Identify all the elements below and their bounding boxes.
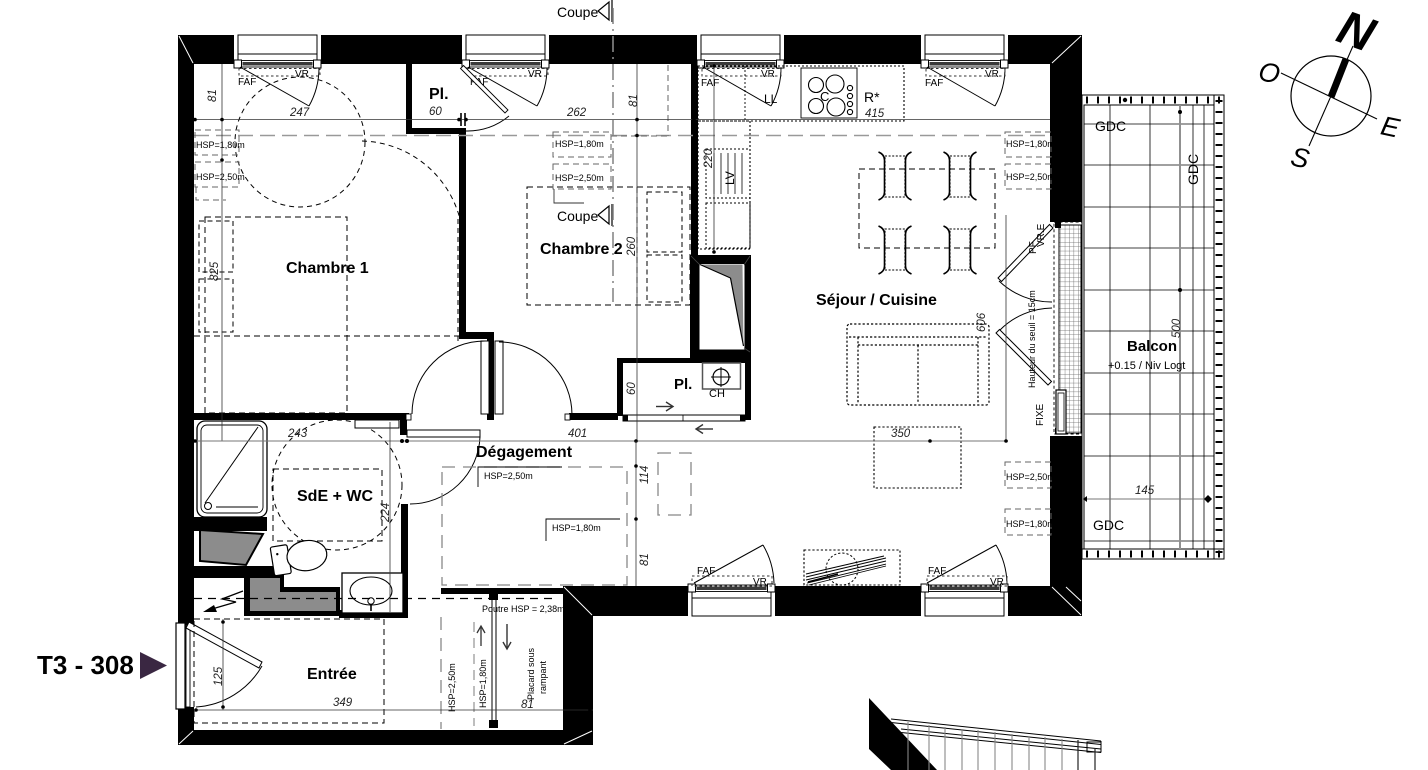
svg-text:Poutre HSP = 2,38m: Poutre HSP = 2,38m <box>482 604 565 614</box>
svg-text:HSP=2,50m: HSP=2,50m <box>555 173 604 183</box>
svg-text:HSP=2,50m: HSP=2,50m <box>1006 472 1055 482</box>
svg-text:HSP=2,50m: HSP=2,50m <box>196 172 245 182</box>
svg-text:FAF: FAF <box>238 77 256 88</box>
svg-text:CH: CH <box>709 388 725 400</box>
svg-text:Séjour / Cuisine: Séjour / Cuisine <box>816 292 937 309</box>
svg-text:HSP=2,50m: HSP=2,50m <box>1006 172 1055 182</box>
svg-text:HSP=1,80m: HSP=1,80m <box>478 659 488 708</box>
svg-text:C: C <box>820 89 829 104</box>
svg-text:FAF: FAF <box>928 566 946 577</box>
svg-text:VR: VR <box>761 69 775 80</box>
svg-text:LL: LL <box>764 92 778 106</box>
svg-text:401: 401 <box>568 428 587 440</box>
svg-text:O: O <box>1256 56 1283 90</box>
svg-text:Chambre 2: Chambre 2 <box>540 241 623 258</box>
svg-text:145: 145 <box>1135 485 1155 497</box>
svg-text:VR: VR <box>295 69 309 80</box>
svg-text:N: N <box>1330 1 1382 63</box>
svg-text:HSP=1,80m: HSP=1,80m <box>1006 519 1055 529</box>
svg-text:Balcon: Balcon <box>1127 338 1177 355</box>
svg-text:Entrée: Entrée <box>307 666 357 683</box>
svg-text:260: 260 <box>626 236 638 257</box>
svg-text:81: 81 <box>207 89 219 102</box>
svg-text:R*: R* <box>864 89 880 105</box>
svg-text:224: 224 <box>380 503 392 523</box>
svg-text:60: 60 <box>626 382 638 395</box>
svg-text:60: 60 <box>429 106 442 118</box>
svg-text:81: 81 <box>628 94 640 107</box>
svg-text:Coupe: Coupe <box>557 208 598 224</box>
svg-text:SdE + WC: SdE + WC <box>297 488 373 505</box>
svg-text:T3 - 308: T3 - 308 <box>37 650 134 680</box>
svg-text:VR: VR <box>985 69 999 80</box>
svg-text:HSP=2,50m: HSP=2,50m <box>447 663 457 712</box>
svg-text:Placard sous: Placard sous <box>526 647 536 700</box>
svg-text:S: S <box>1288 141 1312 174</box>
svg-text:GDC: GDC <box>1095 118 1126 134</box>
svg-text:VR: VR <box>990 577 1004 588</box>
svg-text:Pl.: Pl. <box>674 376 692 393</box>
svg-text:Coupe: Coupe <box>557 4 598 20</box>
svg-text:HSP=1,80m: HSP=1,80m <box>196 140 245 150</box>
svg-text:+0.15 / Niv Logt: +0.15 / Niv Logt <box>1108 360 1185 372</box>
svg-text:VR: VR <box>528 69 542 80</box>
svg-text:114: 114 <box>639 466 651 484</box>
svg-text:350: 350 <box>891 428 911 440</box>
svg-text:500: 500 <box>1171 318 1183 338</box>
svg-text:262: 262 <box>566 107 587 119</box>
svg-text:415: 415 <box>865 108 885 120</box>
svg-text:81: 81 <box>639 553 651 566</box>
svg-text:81: 81 <box>521 699 534 711</box>
svg-text:HSP=1,80m: HSP=1,80m <box>552 523 601 533</box>
svg-text:247: 247 <box>289 107 310 119</box>
svg-text:HSP=1,80m: HSP=1,80m <box>1006 139 1055 149</box>
svg-text:FAF: FAF <box>925 78 943 89</box>
svg-text:220: 220 <box>703 148 715 169</box>
svg-text:VR: VR <box>753 577 767 588</box>
svg-text:GDC: GDC <box>1093 517 1124 533</box>
svg-text:Pl.: Pl. <box>429 86 449 103</box>
svg-text:VR.E: VR.E <box>1036 223 1047 247</box>
svg-text:FAF: FAF <box>697 566 715 577</box>
svg-text:Chambre 1: Chambre 1 <box>286 260 369 277</box>
svg-text:FAF: FAF <box>701 78 719 89</box>
svg-text:606: 606 <box>976 312 988 332</box>
svg-text:E: E <box>1378 110 1403 143</box>
svg-text:FIXE: FIXE <box>1035 403 1046 426</box>
svg-text:243: 243 <box>287 428 308 440</box>
svg-text:825: 825 <box>209 261 221 281</box>
svg-text:349: 349 <box>333 697 353 709</box>
svg-text:LV: LV <box>723 171 737 185</box>
svg-text:HSP=1,80m: HSP=1,80m <box>555 139 604 149</box>
svg-text:HSP=2,50m: HSP=2,50m <box>484 471 533 481</box>
svg-text:GDC: GDC <box>1185 154 1201 185</box>
svg-text:Dégagement: Dégagement <box>476 444 573 461</box>
svg-text:Hauteur du seuil = 15cm: Hauteur du seuil = 15cm <box>1027 290 1037 388</box>
svg-text:rampant: rampant <box>538 660 548 694</box>
svg-text:125: 125 <box>213 666 225 686</box>
